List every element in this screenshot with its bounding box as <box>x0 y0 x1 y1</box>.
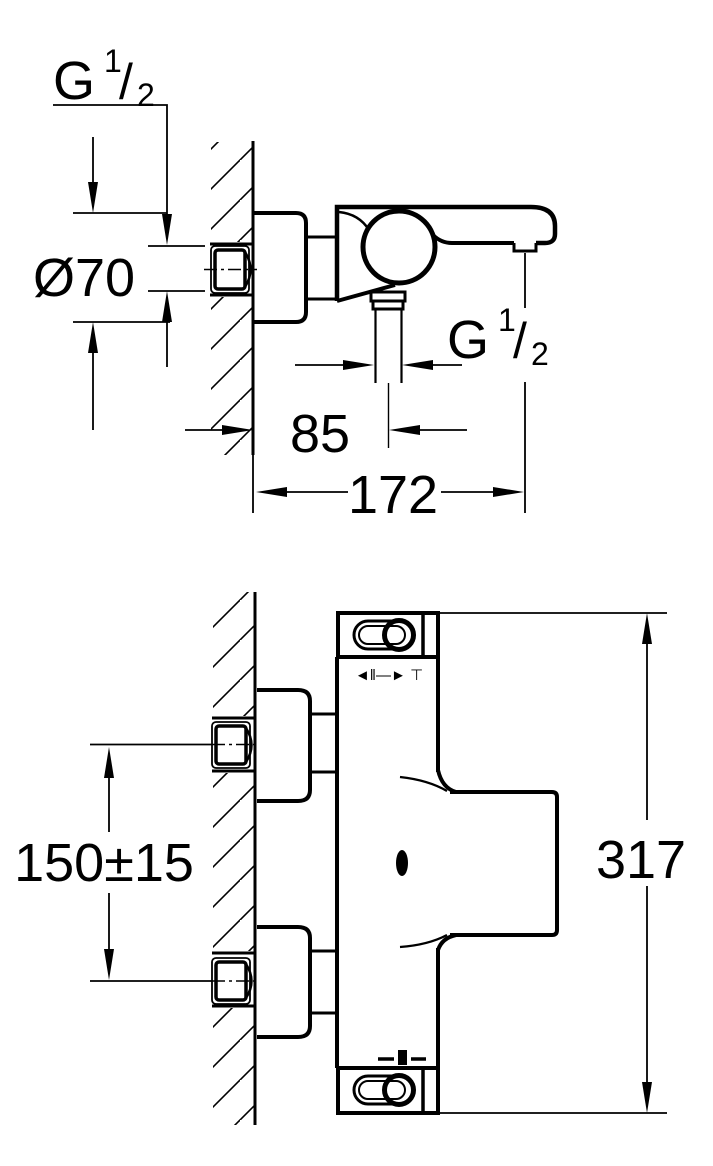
spout-outlet-nub <box>514 243 536 251</box>
total-height-label: 317 <box>596 830 686 890</box>
flow-knob <box>385 1076 414 1105</box>
temperature-scale-mark <box>378 1050 426 1065</box>
body-connector <box>306 237 338 299</box>
outlet-thread-label: G 1 / 2 <box>447 302 549 372</box>
lever-handle-pivot <box>363 211 435 283</box>
wall-hatching <box>211 142 253 455</box>
dim-spout-reach: 172 <box>256 465 524 525</box>
diverter-knob <box>385 621 414 650</box>
wall-thread-label: G 1 / 2 <box>53 43 155 113</box>
dim-escutcheon-diameter: Ø70 <box>33 137 170 430</box>
body-marking-dot <box>396 850 408 876</box>
spout-housing <box>450 792 557 935</box>
upper-escutcheon <box>257 690 310 801</box>
escutcheon <box>253 213 306 322</box>
diverter-icons: ◄‖—► ⊤ <box>355 667 423 684</box>
lower-escutcheon <box>257 927 310 1037</box>
dim-wall-thread: G 1 / 2 <box>53 43 205 367</box>
side-view-drawing: G 1 / 2 Ø70 G 1 / 2 <box>33 43 555 525</box>
drawing-sheet: G 1 / 2 Ø70 G 1 / 2 <box>0 0 713 1166</box>
outlet-offset-label: 85 <box>290 404 350 464</box>
dim-total-height: 317 <box>440 613 686 1113</box>
dim-inlet-spacing: 150±15 <box>14 745 212 982</box>
escutcheon-diameter-label: Ø70 <box>33 248 135 308</box>
spout-reach-label: 172 <box>348 465 438 525</box>
dim-outlet-thread: G 1 / 2 <box>295 302 549 372</box>
technical-drawing: G 1 / 2 Ø70 G 1 / 2 <box>0 0 713 1166</box>
thermostat-body: ◄‖—► ⊤ <box>337 613 557 1113</box>
thermostat-view-drawing: ◄‖—► ⊤ <box>14 592 686 1125</box>
inlet-spacing-label: 150±15 <box>14 833 194 893</box>
wall-hatching <box>213 592 255 1125</box>
